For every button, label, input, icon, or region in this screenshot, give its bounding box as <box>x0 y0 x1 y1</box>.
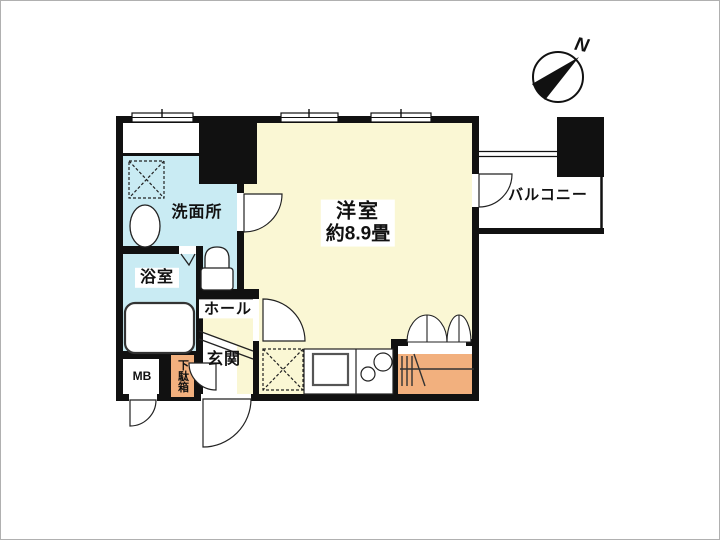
door-arc-balcony <box>479 174 512 207</box>
floorplan-canvas: 洋室 約8.9畳 洗面所 浴室 ホール 玄関 バルコニー MB 下駄箱 N <box>0 0 720 540</box>
wall-mb-right <box>159 354 167 401</box>
windows <box>132 109 431 122</box>
basin-fixture <box>130 205 160 247</box>
storage-counter <box>123 123 199 154</box>
entrance-label: 玄関 <box>207 351 241 369</box>
main-room-name: 洋室 <box>326 201 390 224</box>
toilet-fixture <box>201 247 233 290</box>
floorplan-drawing <box>1 1 719 539</box>
kitchen-counter <box>304 349 393 394</box>
balcony-pillar <box>557 117 604 177</box>
window-3 <box>371 109 431 122</box>
wall-bath-top <box>123 246 179 254</box>
window-2 <box>281 109 338 122</box>
closet-interior <box>398 354 472 394</box>
bathtub <box>125 303 194 353</box>
main-room-size: 約8.9畳 <box>326 224 390 246</box>
meter-box-label: MB <box>133 370 152 384</box>
opening-washroom-door <box>237 193 244 231</box>
stove-burner-small <box>361 367 375 381</box>
opening-bath-door <box>179 246 196 254</box>
storage-counter-edge <box>123 153 199 156</box>
balcony-label: バルコニー <box>508 186 588 203</box>
compass-icon <box>532 52 583 102</box>
closet-track <box>398 346 472 354</box>
wall-hall-right-b <box>253 341 259 401</box>
bathroom-label: 浴室 <box>135 268 179 288</box>
stove-burner-large <box>374 353 392 371</box>
wall-washroom-a <box>237 184 244 193</box>
main-room-label: 洋室 約8.9畳 <box>321 200 395 247</box>
washroom-label: 洗面所 <box>171 204 222 222</box>
wall-hall-right-a <box>253 289 259 299</box>
door-arc-entrance <box>203 399 251 447</box>
kitchen-sink <box>313 354 348 385</box>
shoe-cabinet-label: 下駄箱 <box>177 360 188 393</box>
balcony-wall-bottom <box>479 228 604 234</box>
door-arc-meter-box <box>130 400 156 426</box>
pillar-top-center <box>199 116 257 184</box>
toilet-tank <box>201 268 233 290</box>
wall-washroom-b <box>237 231 244 294</box>
toilet-bowl <box>205 247 229 269</box>
opening-balcony-door <box>472 174 479 207</box>
hall-label: ホール <box>199 299 257 318</box>
window-1 <box>132 109 193 122</box>
